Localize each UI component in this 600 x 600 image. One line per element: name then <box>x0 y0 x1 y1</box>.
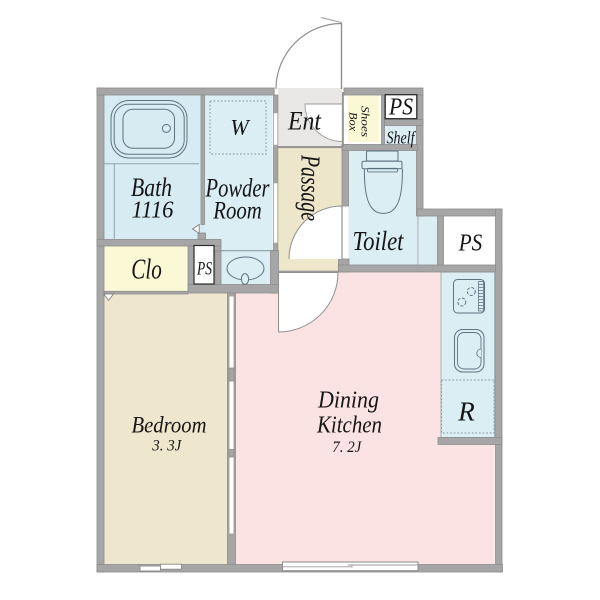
svg-text:7. 2J: 7. 2J <box>332 439 362 456</box>
svg-text:PS: PS <box>196 259 212 280</box>
svg-text:3. 3J: 3. 3J <box>151 438 182 455</box>
svg-text:W: W <box>230 115 250 140</box>
svg-text:R: R <box>457 397 475 427</box>
svg-text:Bedroom: Bedroom <box>132 413 207 438</box>
svg-text:Passage: Passage <box>296 154 326 221</box>
svg-text:PS: PS <box>388 95 413 121</box>
svg-text:Dining: Dining <box>317 388 379 414</box>
svg-text:Ent: Ent <box>287 107 322 136</box>
svg-text:Clo: Clo <box>131 254 162 286</box>
svg-text:Kitchen: Kitchen <box>316 413 382 439</box>
svg-text:Toilet: Toilet <box>353 226 405 256</box>
svg-text:PS: PS <box>458 231 482 257</box>
svg-text:Box: Box <box>347 112 361 132</box>
svg-text:1116: 1116 <box>132 198 174 224</box>
svg-text:Shelf: Shelf <box>387 128 417 148</box>
svg-text:Room: Room <box>212 198 261 225</box>
